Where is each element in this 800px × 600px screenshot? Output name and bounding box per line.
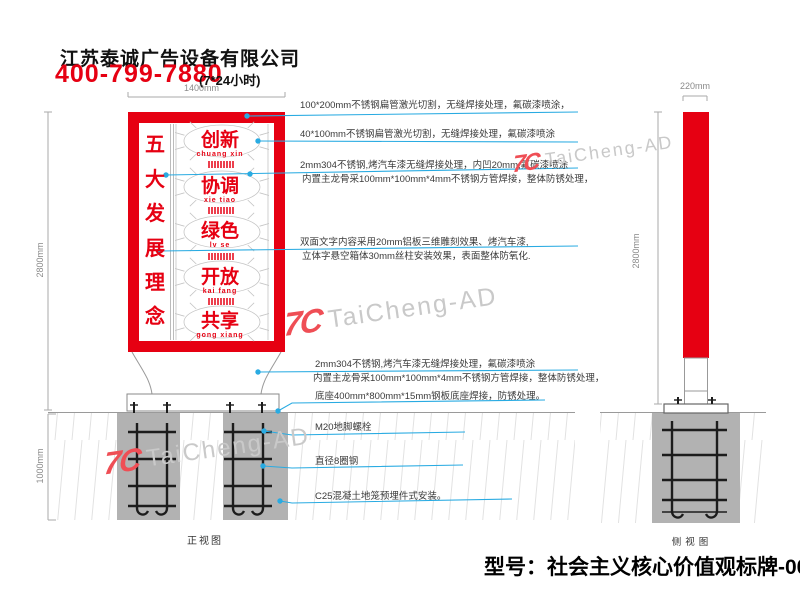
base-plate-front (127, 394, 279, 411)
neck-curve-left (132, 352, 152, 394)
dim-label-sign-width: 1400mm (184, 83, 219, 93)
slogan-char-4: 展 (140, 238, 170, 260)
neck-curve-right (261, 352, 281, 394)
dim-label-side-width: 220mm (672, 81, 718, 91)
annotation-baseplate: 底座400mm*800mm*15mm钢板底座焊接，防锈处理。 (315, 391, 545, 402)
value-word-3: 绿色 (172, 221, 268, 242)
annotation-body-line1: 2mm304不锈钢,烤汽车漆无缝焊接处理，氟碳漆喷涂 (315, 359, 535, 370)
slogan-char-5: 理 (140, 272, 170, 294)
value-word-1: 创新 (172, 130, 268, 151)
taicheng-logo-icon: 7C (283, 301, 323, 344)
value-pinyin-1: chuang xin (172, 151, 268, 159)
front-view-label: 正视图 (175, 532, 235, 547)
value-word-5: 共享 (172, 311, 268, 332)
dim-label-height-front: 2800mm (35, 230, 45, 290)
annotation-anchor-bolt: M20地脚螺栓 (315, 422, 371, 433)
model-number: 型号：社会主义核心价值观标牌-0080 (484, 551, 800, 581)
technical-drawing-page: 江苏泰诚广告设备有限公司 400-799-7880 (7*24小时) 1400m… (0, 0, 800, 600)
taicheng-logo-icon: 7C (512, 147, 540, 178)
slogan-char-3: 发 (140, 203, 170, 225)
value-pinyin-3: lv se (172, 242, 268, 250)
annotation-text-line1: 双面文字内容采用20mm铝板三维雕刻效果、烤汽车漆, (300, 237, 529, 248)
annotation-body-line2: 内置主龙骨采100mm*100mm*4mm不锈钢方管焊接，整体防锈处理， (313, 373, 604, 384)
annotation-text-line2: 立体字悬空箱体30mm丝柱安装效果，表面整体防氧化. (302, 251, 531, 262)
side-column-lower (685, 358, 708, 404)
dim-label-height-side: 2800mm (631, 221, 641, 281)
value-pinyin-4: kai fang (172, 288, 268, 296)
slogan-char-2: 大 (140, 169, 170, 191)
value-word-4: 开放 (172, 267, 268, 288)
value-pinyin-5: gong xiang (172, 332, 268, 340)
slogan-char-6: 念 (140, 306, 170, 328)
slogan-char-1: 五 (140, 134, 170, 156)
annotation-top-tube: 100*200mm不锈钢扁管激光切割，无缝焊接处理，氟碳漆喷涂， (300, 100, 570, 111)
annotation-rebar: 直径8圈钢 (315, 456, 358, 467)
annotation-concrete: C25混凝土地笼预埋件式安装。 (315, 491, 446, 502)
annotation-frame-tube: 40*100mm不锈钢扁管激光切割，无缝焊接处理，氟碳漆喷涂 (300, 129, 555, 140)
value-word-2: 协调 (172, 176, 268, 197)
value-pinyin-2: xie tiao (172, 197, 268, 205)
side-column-red (683, 112, 709, 358)
side-view-label: 侧视图 (662, 534, 722, 548)
annotation-cabinet-line2: 内置主龙骨采100mm*100mm*4mm不锈钢方管焊接，整体防锈处理， (302, 174, 593, 185)
dim-label-foundation-depth: 1000mm (35, 438, 45, 494)
base-plate-side (664, 404, 728, 413)
taicheng-logo-icon: 7C (103, 441, 141, 483)
